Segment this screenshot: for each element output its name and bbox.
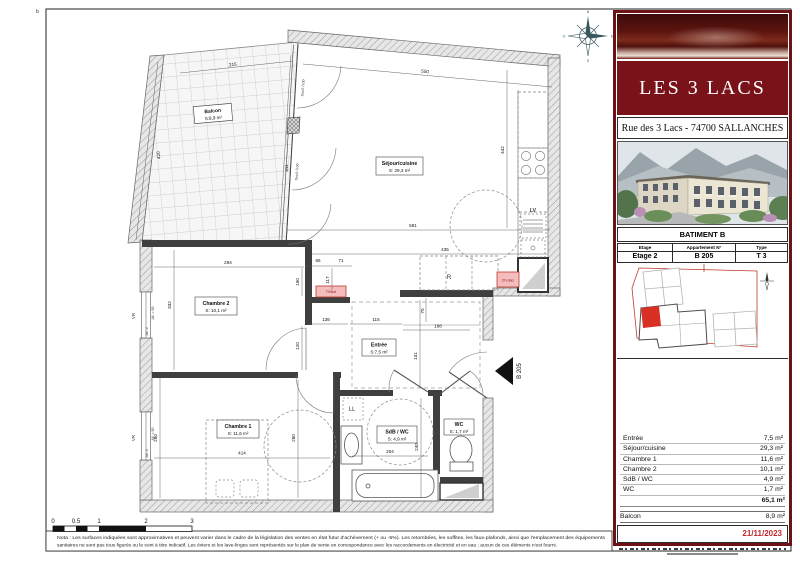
toilet	[450, 436, 472, 464]
info-header-etage: Etage	[618, 244, 673, 252]
svg-text:3: 3	[190, 519, 194, 525]
svg-text:204: 204	[386, 449, 394, 454]
svg-text:150: 150	[295, 278, 300, 286]
cooktop-burner	[521, 165, 530, 174]
svg-text:435: 435	[441, 247, 449, 252]
wc-door-leaf	[440, 371, 470, 394]
svg-text:Ch.Gaz: Ch.Gaz	[502, 279, 514, 283]
info-header-appartement: Appartement N°	[673, 244, 736, 252]
svg-text:120: 120	[295, 342, 300, 350]
room-label-wc: WC S: 1,7 m²	[444, 419, 474, 435]
area-row: SdB / WC 4,9 m²	[620, 475, 785, 485]
turning-circle-ch1	[264, 410, 336, 482]
room-label-sdb: SdB / WC S: 4,9 m²	[377, 426, 417, 443]
areas-table: Entrée 7,5 m² Séjour/cuisine 29,3 m² Cha…	[620, 434, 785, 523]
svg-text:Entrée: Entrée	[371, 343, 387, 349]
svg-text:Seuil: 0,00: Seuil: 0,00	[300, 79, 305, 96]
svg-text:71: 71	[338, 258, 344, 263]
unit-entry-marker: B 205	[495, 357, 523, 385]
room-label-balcon: Balcon S:8,9 m²	[193, 103, 232, 123]
cooktop-burner	[535, 151, 544, 160]
sdb-door-leaf	[394, 370, 428, 392]
svg-text:294: 294	[224, 260, 232, 265]
building-render	[617, 141, 788, 225]
svg-text:SdB / WC: SdB / WC	[385, 430, 409, 436]
svg-text:S: S	[587, 59, 590, 63]
svg-text:168: 168	[434, 324, 442, 329]
svg-text:T.Elect: T.Elect	[326, 290, 336, 294]
svg-text:VR: VR	[131, 435, 136, 441]
svg-text:131: 131	[413, 352, 418, 360]
duct-shaft-wc	[440, 483, 483, 500]
legal-footer	[619, 545, 786, 555]
svg-text:117: 117	[325, 276, 330, 284]
svg-text:332: 332	[167, 301, 172, 309]
total-area-row: 65,1 m²	[620, 496, 785, 507]
svg-text:WC: WC	[455, 422, 464, 428]
svg-text:411: 411	[284, 164, 290, 172]
svg-text:N: N	[587, 10, 590, 14]
svg-text:Seuil: 0,00: Seuil: 0,00	[294, 163, 299, 180]
kitchen-units	[518, 90, 548, 258]
fridge-label: R	[447, 274, 452, 281]
site-key-plan	[617, 264, 788, 357]
bathtub	[352, 470, 438, 501]
pillow	[216, 480, 234, 497]
scale-bar: 0 0.5 1 2 3	[51, 519, 194, 532]
entry-arrow-icon	[495, 357, 513, 385]
area-row: Chambre 2 10,1 m²	[620, 465, 785, 475]
svg-text:Chambre 2: Chambre 2	[203, 301, 230, 307]
svg-text:S: 29,3 m²: S: 29,3 m²	[389, 168, 411, 173]
svg-text:420: 420	[156, 151, 162, 160]
room-label-chambre2: Chambre 2 S: 10,1 m²	[195, 297, 237, 315]
area-row: WC 1,7 m²	[620, 485, 785, 495]
svg-text:442: 442	[500, 146, 505, 154]
svg-text:136: 136	[322, 317, 330, 322]
fine-print-line	[619, 548, 786, 551]
entry-door-swing	[449, 352, 487, 372]
svg-text:S: 10,1 m²: S: 10,1 m²	[205, 308, 227, 313]
svg-text:S: 11,6 m²: S: 11,6 m²	[228, 431, 249, 436]
svg-text:581: 581	[409, 223, 417, 228]
svg-text:B 205: B 205	[517, 363, 523, 379]
svg-text:115: 115	[372, 317, 380, 322]
svg-text:All. V.: All. V.	[145, 326, 149, 335]
svg-text:550: 550	[421, 69, 430, 75]
pillow	[240, 480, 258, 497]
dining-table	[450, 190, 522, 262]
building-c-footprint	[713, 311, 757, 347]
dishwasher	[520, 214, 546, 238]
apartment-info-table: Etage Appartement N° Type Etage 2 B 205 …	[617, 243, 788, 263]
total-area-value: 65,1 m²	[762, 496, 785, 506]
header-photo	[617, 14, 788, 59]
toilet-tank	[450, 462, 473, 471]
svg-text:O: O	[563, 35, 566, 39]
cooktop-burner	[521, 151, 530, 160]
svg-text:All. = 50: All. = 50	[151, 306, 155, 319]
svg-text:S: 4,9 m²: S: 4,9 m²	[388, 437, 407, 442]
info-value-etage: Etage 2	[618, 252, 673, 262]
svg-text:65: 65	[315, 258, 321, 263]
empty-section	[617, 358, 788, 433]
svg-text:VR: VR	[131, 313, 136, 319]
svg-text:280: 280	[291, 434, 296, 442]
electrical-board: T.Elect	[316, 286, 346, 297]
info-value-type: T 3	[736, 252, 787, 262]
fridge-recess	[420, 256, 498, 290]
highlighted-unit	[641, 306, 661, 328]
chambre2-door-swing	[266, 328, 306, 370]
info-value-appartement: B 205	[673, 252, 736, 262]
building-name: BATIMENT B	[617, 227, 788, 242]
plan-date: 21/11/2023	[617, 525, 788, 543]
project-title-block: LES 3 LACS	[617, 61, 788, 115]
info-panel: LES 3 LACS Rue des 3 Lacs - 74700 SALLAN…	[613, 10, 792, 546]
area-row: Séjour/cuisine 29,3 m²	[620, 444, 785, 454]
keyplan-compass-icon	[760, 272, 774, 290]
info-header-type: Type	[736, 244, 787, 252]
balcony-door-swing	[288, 204, 331, 244]
project-address: Rue des 3 Lacs - 74700 SALLANCHES	[617, 117, 788, 139]
svg-text:0.5: 0.5	[72, 519, 81, 525]
svg-text:Séjour/cuisine: Séjour/cuisine	[382, 161, 418, 167]
dishwasher-label: LV	[530, 208, 537, 214]
balcony	[128, 42, 300, 246]
svg-text:S:7,5 m²: S:7,5 m²	[370, 350, 388, 355]
building-a-footprint	[643, 268, 683, 308]
compass-rose-icon: N S E O	[563, 10, 614, 63]
svg-text:Nota : Les surfaces indiquées: Nota : Les surfaces indiquées sont appro…	[57, 535, 605, 540]
svg-text:All. V.: All. V.	[145, 448, 149, 457]
area-row: Chambre 1 11,6 m²	[620, 455, 785, 465]
gas-boiler: Ch.Gaz	[497, 272, 519, 287]
svg-text:240: 240	[414, 443, 419, 451]
svg-text:414: 414	[238, 451, 246, 456]
svg-text:sanitaires ne sont pas tous fi: sanitaires ne sont pas tous figurés ou l…	[57, 543, 557, 548]
balcony-area-row: Balcon 8,9 m²	[620, 511, 785, 523]
chambre1-door-swing	[296, 375, 334, 413]
svg-text:S: 1,7 m²: S: 1,7 m²	[450, 429, 469, 434]
cooktop-burner	[535, 165, 544, 174]
margin-mark: b	[36, 9, 39, 15]
interior-walls	[142, 240, 493, 512]
room-label-sejour: Séjour/cuisine S: 29,3 m²	[376, 157, 423, 175]
project-title: LES 3 LACS	[639, 77, 766, 100]
svg-text:0: 0	[51, 519, 55, 525]
svg-text:1: 1	[97, 519, 101, 525]
plan-sheet: b	[0, 0, 800, 566]
area-row: Entrée 7,5 m²	[620, 434, 785, 444]
duct-shaft-kitchen	[518, 258, 548, 292]
svg-text:215: 215	[229, 62, 238, 68]
room-label-entree: Entrée S:7,5 m²	[362, 339, 396, 356]
washer-label: LL	[349, 407, 356, 413]
svg-text:All. = 50: All. = 50	[151, 427, 155, 440]
room-label-chambre1: Chambre 1 S: 11,6 m²	[217, 420, 259, 438]
svg-text:Chambre 1: Chambre 1	[225, 424, 252, 430]
building-render-image	[618, 142, 788, 224]
svg-text:70: 70	[420, 308, 425, 314]
footer-rule	[667, 553, 737, 555]
kitchen-sink	[521, 240, 545, 257]
svg-text:2: 2	[144, 519, 148, 525]
